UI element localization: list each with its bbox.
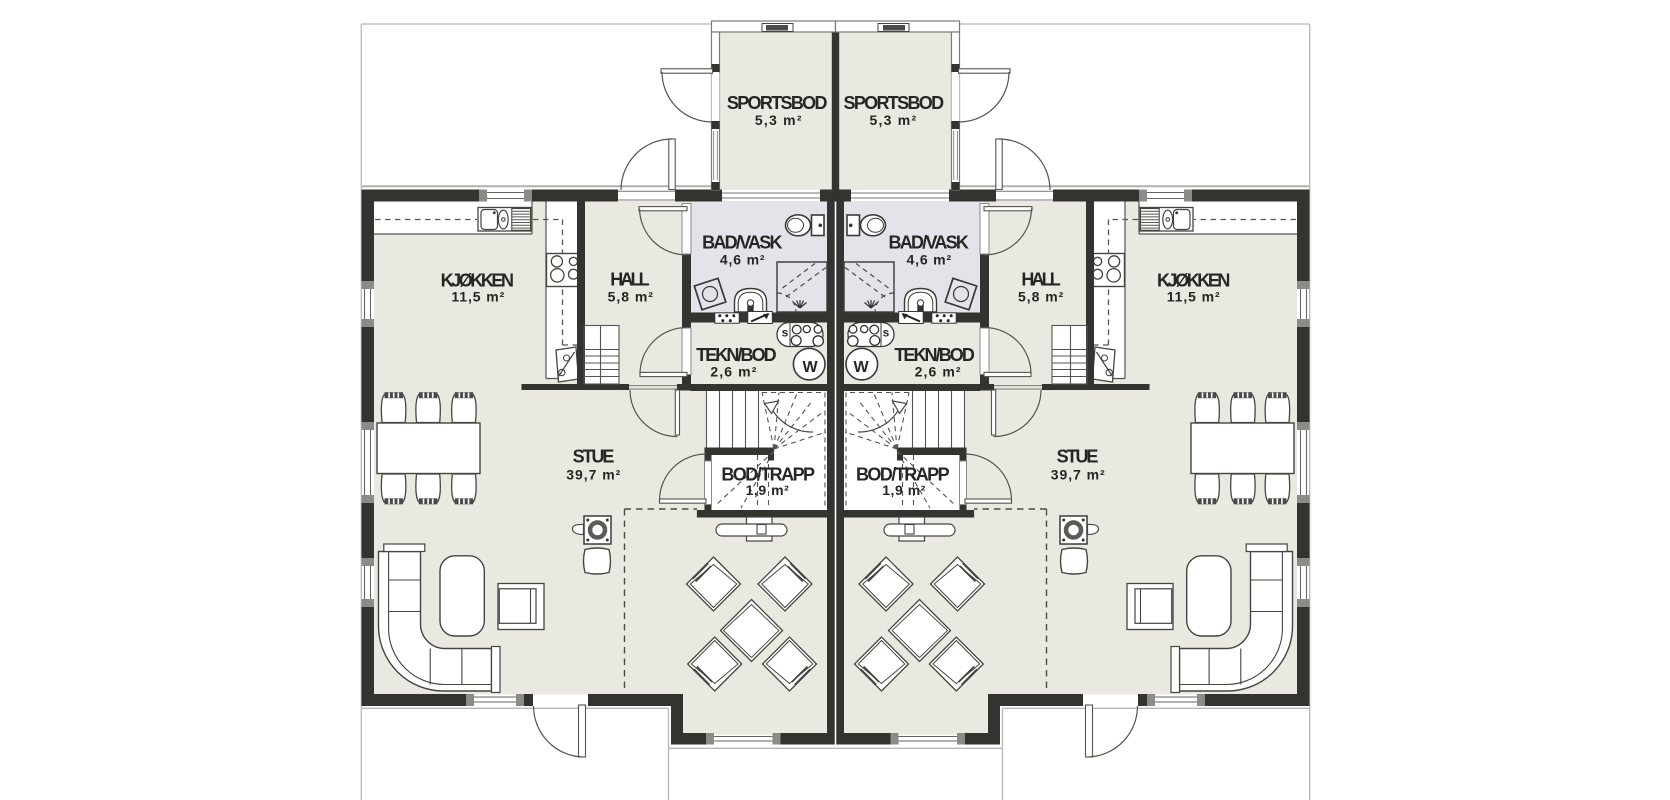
svg-text:11,5 m²: 11,5 m² [1167, 288, 1220, 304]
svg-text:W: W [853, 359, 869, 376]
svg-text:2,6 m²: 2,6 m² [710, 364, 756, 380]
svg-text:4,6 m²: 4,6 m² [720, 252, 765, 268]
svg-text:BAD/VASK: BAD/VASK [702, 233, 782, 253]
svg-text:TEKN/BOD: TEKN/BOD [696, 345, 777, 365]
svg-text:HALL: HALL [1021, 270, 1060, 290]
svg-text:HALL: HALL [610, 270, 649, 290]
svg-text:KJØKKEN: KJØKKEN [1157, 270, 1230, 290]
svg-text:5,8 m²: 5,8 m² [1018, 288, 1064, 304]
svg-text:SPORTSBOD: SPORTSBOD [727, 93, 828, 113]
svg-text:5,3 m²: 5,3 m² [869, 112, 916, 128]
svg-text:TEKN/BOD: TEKN/BOD [894, 345, 975, 365]
svg-text:1,9 m²: 1,9 m² [746, 482, 790, 498]
svg-text:5,8 m²: 5,8 m² [608, 288, 654, 304]
svg-text:5,3 m²: 5,3 m² [755, 112, 802, 128]
svg-text:BAD/VASK: BAD/VASK [889, 233, 969, 253]
svg-text:4,6 m²: 4,6 m² [906, 252, 951, 268]
svg-text:SPORTSBOD: SPORTSBOD [844, 93, 945, 113]
svg-text:1,9 m²: 1,9 m² [882, 482, 926, 498]
svg-text:39,7 m²: 39,7 m² [566, 467, 620, 483]
svg-text:39,7 m²: 39,7 m² [1051, 467, 1105, 483]
svg-text:11,5 m²: 11,5 m² [451, 288, 504, 304]
svg-text:2,6 m²: 2,6 m² [915, 364, 961, 380]
svg-text:s: s [782, 326, 789, 340]
svg-text:STUE: STUE [573, 447, 615, 467]
svg-text:W: W [802, 359, 818, 376]
svg-text:KJØKKEN: KJØKKEN [441, 270, 514, 290]
svg-text:s: s [883, 326, 890, 340]
svg-text:STUE: STUE [1057, 447, 1099, 467]
